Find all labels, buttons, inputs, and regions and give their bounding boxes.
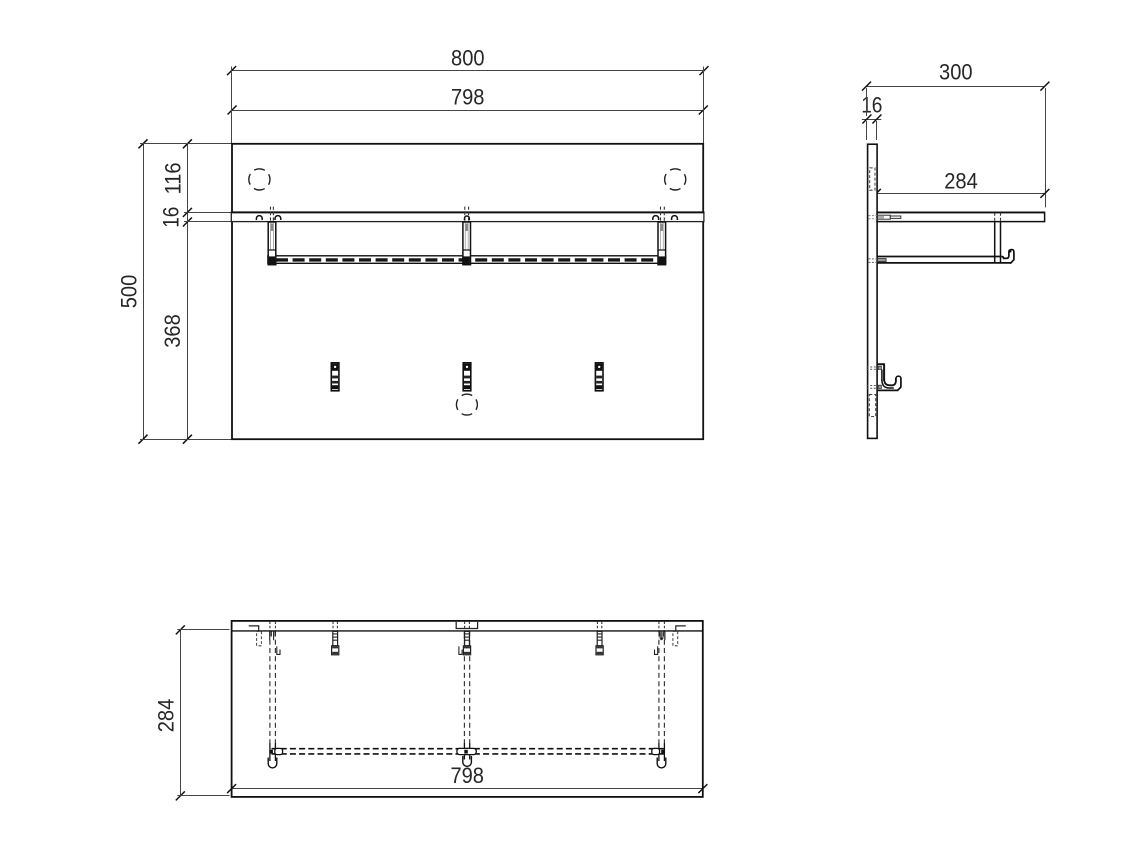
svg-text:284: 284	[154, 699, 179, 733]
svg-text:500: 500	[117, 275, 142, 309]
svg-text:284: 284	[944, 169, 978, 194]
svg-text:16: 16	[861, 92, 882, 117]
svg-text:368: 368	[160, 314, 185, 348]
svg-text:16: 16	[158, 207, 183, 228]
svg-text:800: 800	[451, 46, 485, 71]
svg-text:116: 116	[160, 162, 185, 194]
svg-text:798: 798	[451, 85, 485, 110]
svg-text:300: 300	[939, 60, 973, 85]
